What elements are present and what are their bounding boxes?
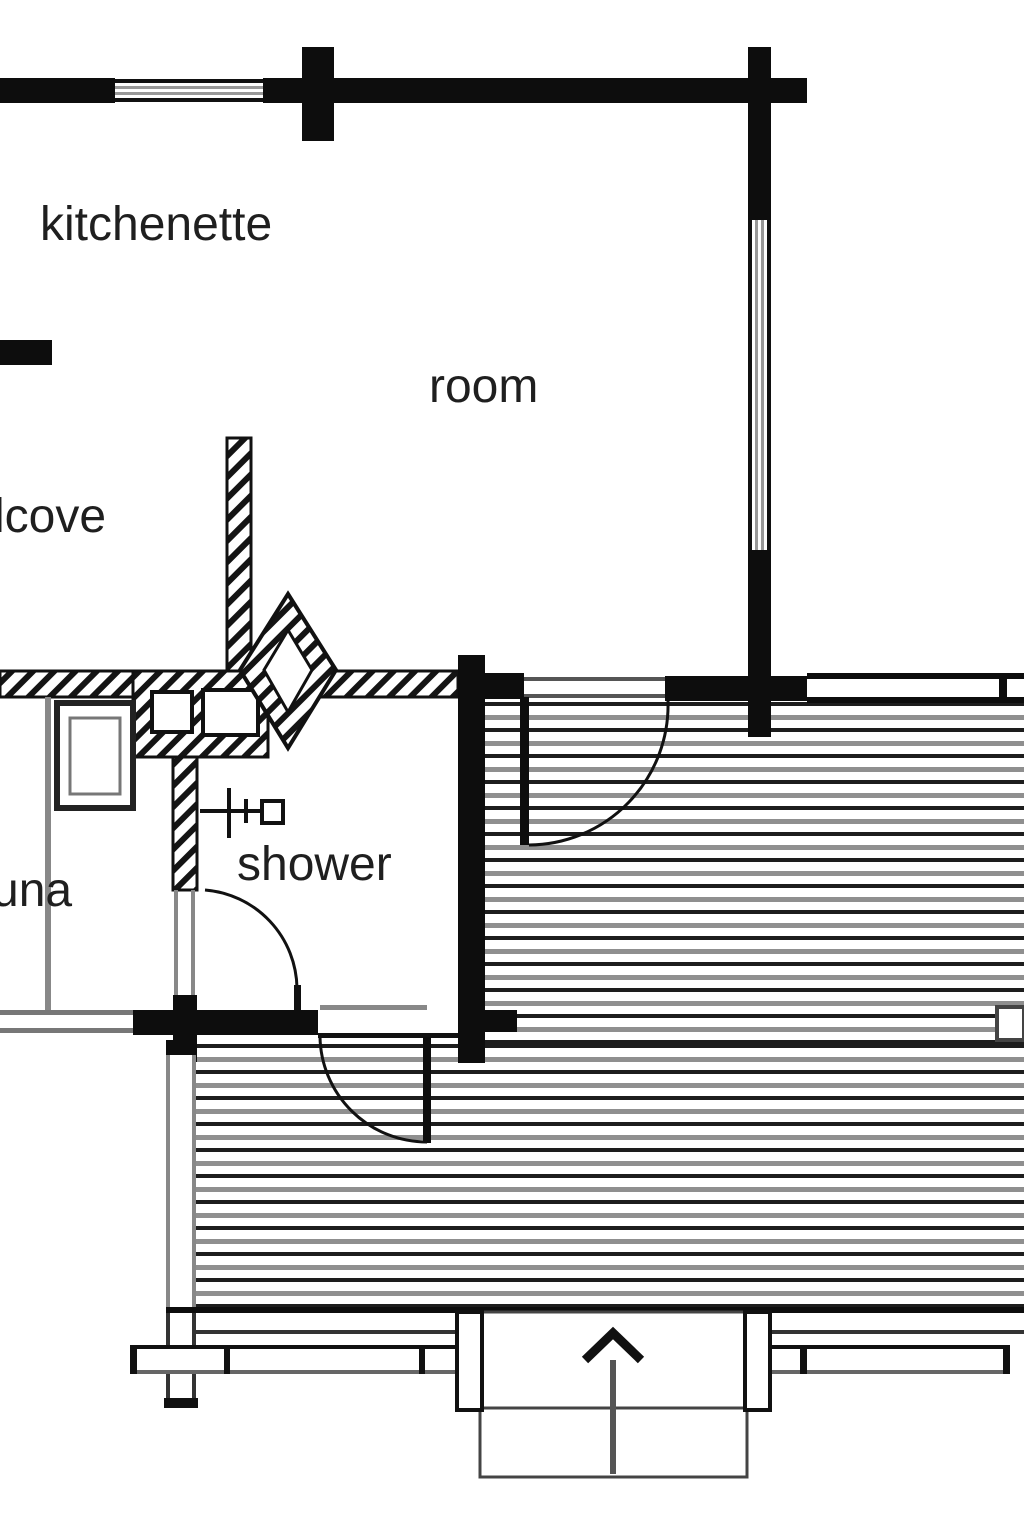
kitchenette-wall-stub bbox=[0, 340, 52, 365]
east-window bbox=[748, 220, 771, 550]
alcove-wall bbox=[227, 438, 251, 671]
north-wall-left bbox=[0, 78, 120, 103]
deck-railing-post-box bbox=[997, 1007, 1024, 1040]
shower-south-wall bbox=[133, 1010, 318, 1035]
north-window bbox=[115, 78, 263, 103]
shower-east-wall bbox=[458, 655, 485, 1063]
east-wall-upper bbox=[748, 47, 771, 220]
sauna-shower-wall bbox=[173, 757, 197, 890]
label-kitchenette: kitchenette bbox=[40, 200, 272, 250]
north-wall-post bbox=[302, 47, 334, 141]
shower-mixer-icon bbox=[200, 788, 283, 838]
shower-south-stub bbox=[484, 1010, 517, 1032]
upper-deck-boards bbox=[484, 700, 1024, 1048]
room-south-wall-stub bbox=[484, 673, 524, 699]
sauna-wall-line bbox=[45, 697, 51, 1010]
label-room: room bbox=[429, 362, 538, 412]
room-south-wall bbox=[665, 676, 807, 701]
north-wall-right bbox=[263, 78, 807, 103]
sauna-stove bbox=[57, 703, 133, 808]
label-sauna: una bbox=[0, 866, 72, 916]
east-wall-lower bbox=[748, 550, 771, 737]
upper-deck-railing bbox=[807, 673, 1024, 703]
sauna-south-sill bbox=[0, 1010, 133, 1033]
label-shower: shower bbox=[237, 840, 392, 890]
label-alcove: lcove bbox=[0, 492, 106, 542]
lower-deck-boards bbox=[196, 1044, 1024, 1312]
floor-plan: kitchenette room lcove una shower bbox=[0, 0, 1024, 1536]
deck-left-edge bbox=[166, 1040, 196, 1317]
